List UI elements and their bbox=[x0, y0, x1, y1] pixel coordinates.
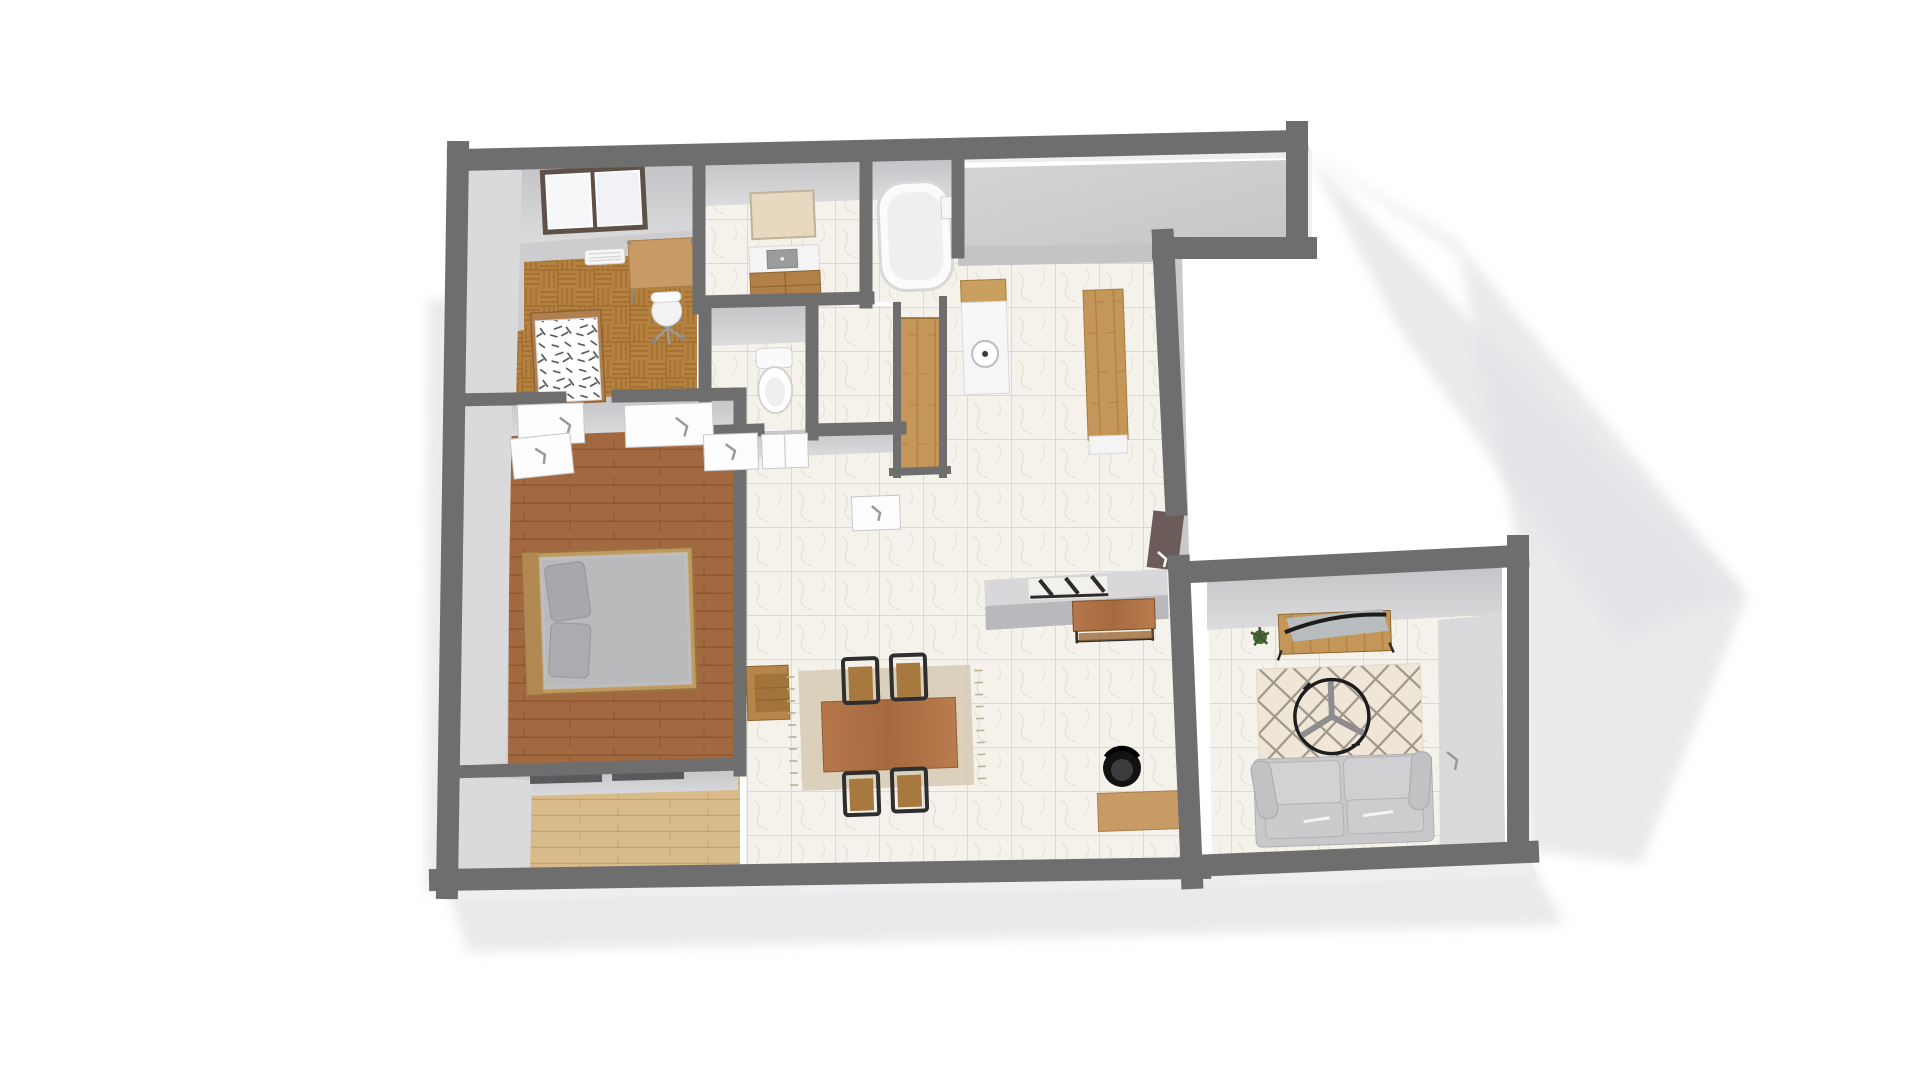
wall-shelf bbox=[746, 665, 790, 720]
coat-rack bbox=[1028, 576, 1109, 601]
closet-wood-strip bbox=[900, 318, 941, 472]
right-wall-upper bbox=[1163, 240, 1176, 505]
wall-vent bbox=[584, 248, 625, 265]
corridor-south-wall bbox=[812, 428, 900, 430]
pillow-left bbox=[544, 561, 591, 622]
floor-plan-canvas bbox=[0, 0, 1920, 1080]
hall-desk bbox=[1097, 791, 1182, 832]
island-end-cap bbox=[1089, 435, 1128, 454]
living-east-face bbox=[1438, 614, 1505, 846]
northeast-gray-room bbox=[962, 160, 1292, 250]
window bbox=[542, 167, 645, 232]
pillow-right bbox=[548, 622, 591, 678]
right-wall-lower bbox=[1179, 566, 1192, 878]
bedroom-south-wall bbox=[452, 764, 740, 772]
bathroom-south-wall bbox=[699, 298, 868, 302]
bottom-room-west-face bbox=[448, 776, 532, 876]
single-bed bbox=[531, 309, 606, 405]
counter-wood-section bbox=[961, 279, 1007, 305]
hall-cupboard bbox=[761, 433, 808, 469]
door-bedroom bbox=[624, 402, 713, 447]
mirror bbox=[750, 191, 815, 240]
door-wc bbox=[703, 433, 758, 471]
kitchen-island bbox=[1083, 289, 1128, 440]
corridor-floor bbox=[814, 306, 895, 432]
bathtub-basin bbox=[887, 191, 945, 281]
wc bbox=[756, 347, 794, 413]
black-swivel-chair bbox=[1103, 748, 1141, 787]
wing-bottom-wall bbox=[1191, 852, 1528, 866]
door-bedroom-inner bbox=[510, 433, 574, 479]
bottom-wall bbox=[440, 868, 1200, 880]
armrest-right bbox=[1408, 751, 1432, 810]
dining-table bbox=[821, 697, 957, 772]
wc-north-face bbox=[707, 302, 810, 346]
console-table bbox=[1072, 599, 1155, 644]
floor-plan-svg bbox=[0, 0, 1920, 1080]
door-kitchen-side bbox=[851, 495, 900, 531]
sofa bbox=[1249, 750, 1435, 847]
double-bed bbox=[522, 547, 697, 695]
master-bedroom bbox=[522, 547, 697, 695]
toilet-tank bbox=[756, 347, 793, 368]
